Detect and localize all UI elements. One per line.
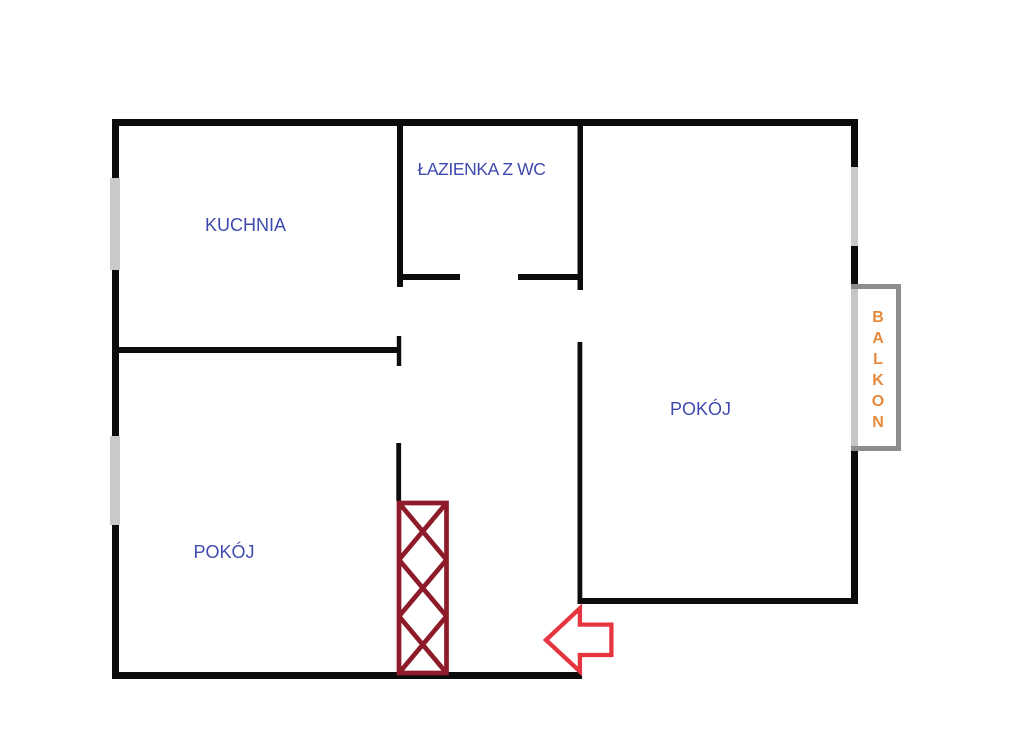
svg-text:POKÓJ: POKÓJ [670, 398, 731, 419]
svg-text:B: B [872, 309, 884, 326]
svg-text:O: O [872, 393, 884, 410]
svg-text:POKÓJ: POKÓJ [193, 541, 254, 562]
svg-text:N: N [872, 414, 884, 431]
svg-text:KUCHNIA: KUCHNIA [205, 215, 286, 235]
svg-text:L: L [873, 351, 883, 368]
svg-text:K: K [872, 372, 884, 389]
svg-text:ŁAZIENKA Z WC: ŁAZIENKA Z WC [417, 159, 545, 179]
svg-text:A: A [872, 330, 884, 347]
